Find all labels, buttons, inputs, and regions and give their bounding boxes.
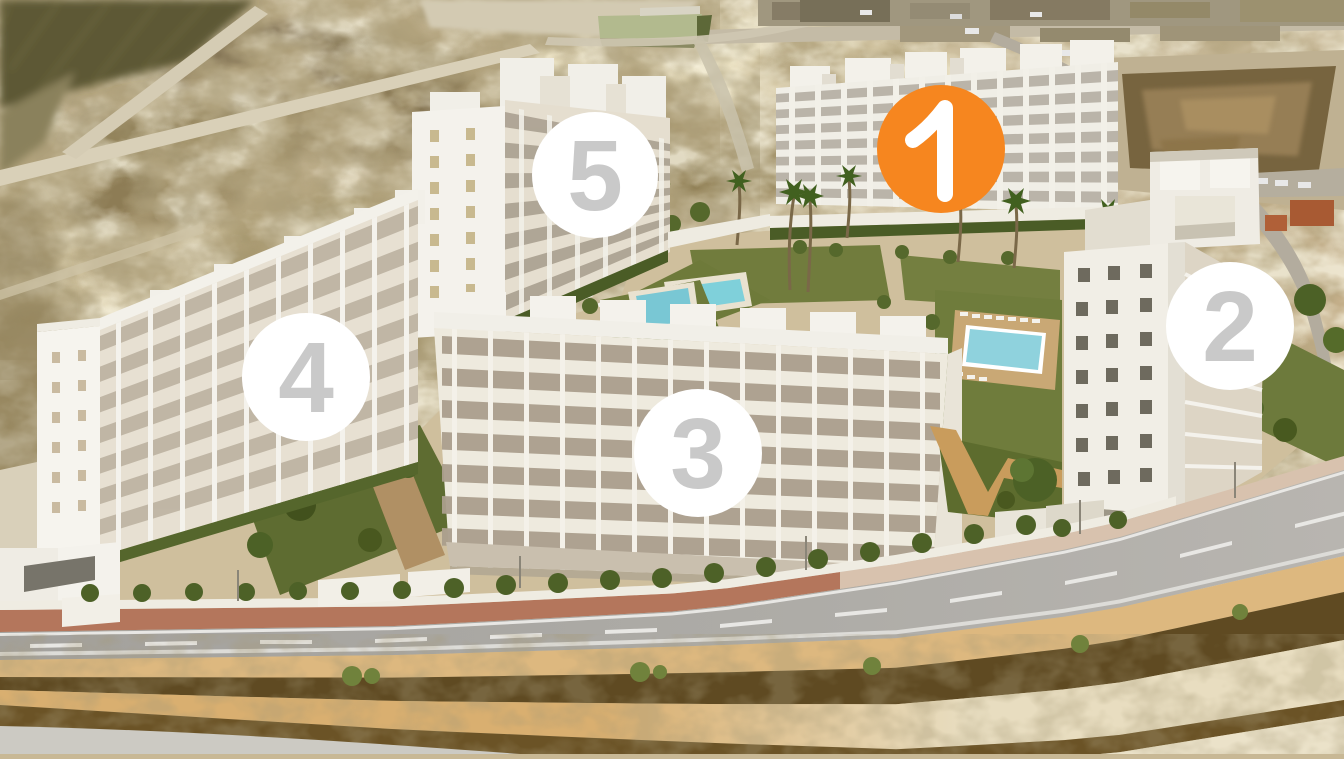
svg-text:4: 4 [278,322,334,434]
svg-text:2: 2 [1202,271,1258,383]
svg-text:5: 5 [567,120,623,232]
svg-text:3: 3 [670,398,726,510]
